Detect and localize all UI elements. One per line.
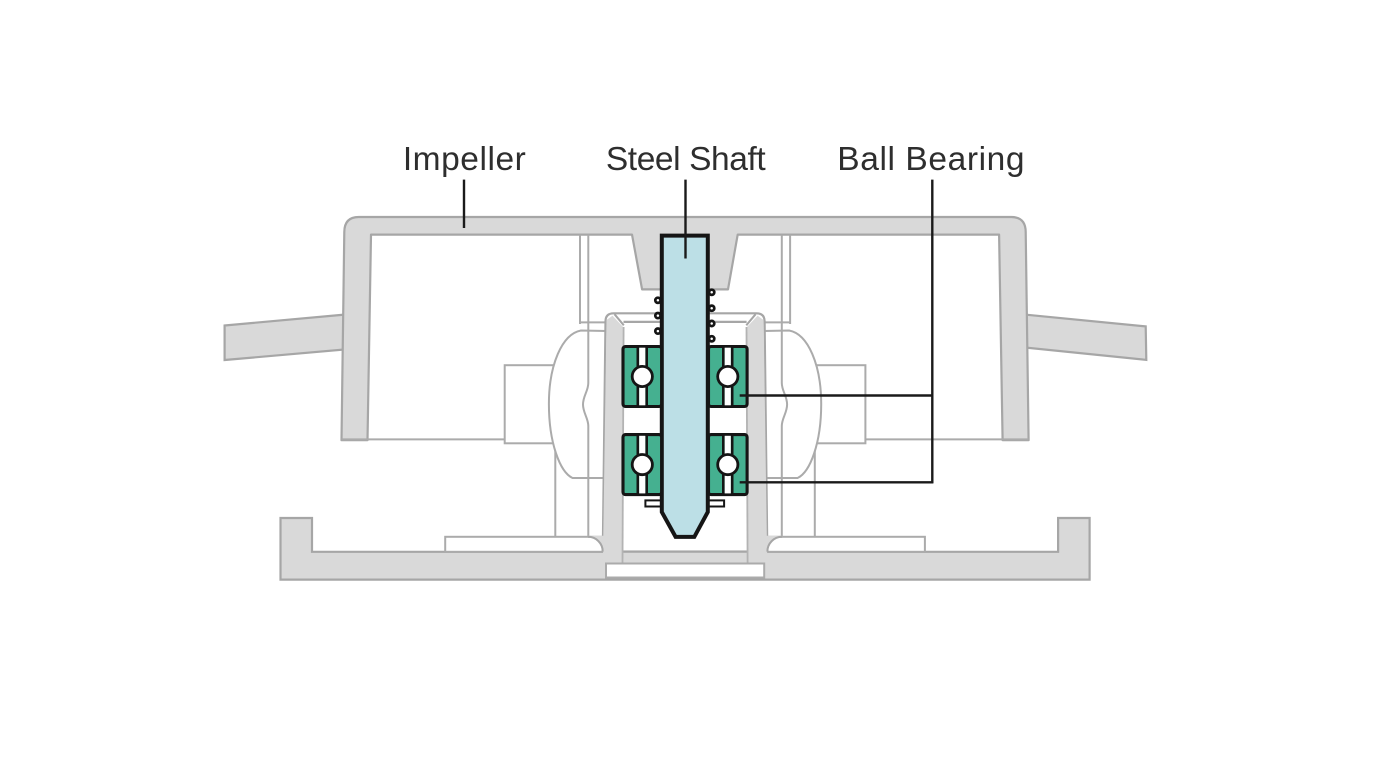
svg-text:Ball Bearing: Ball Bearing bbox=[837, 141, 1025, 178]
svg-text:Steel Shaft: Steel Shaft bbox=[606, 141, 767, 178]
svg-text:Impeller: Impeller bbox=[403, 141, 527, 178]
